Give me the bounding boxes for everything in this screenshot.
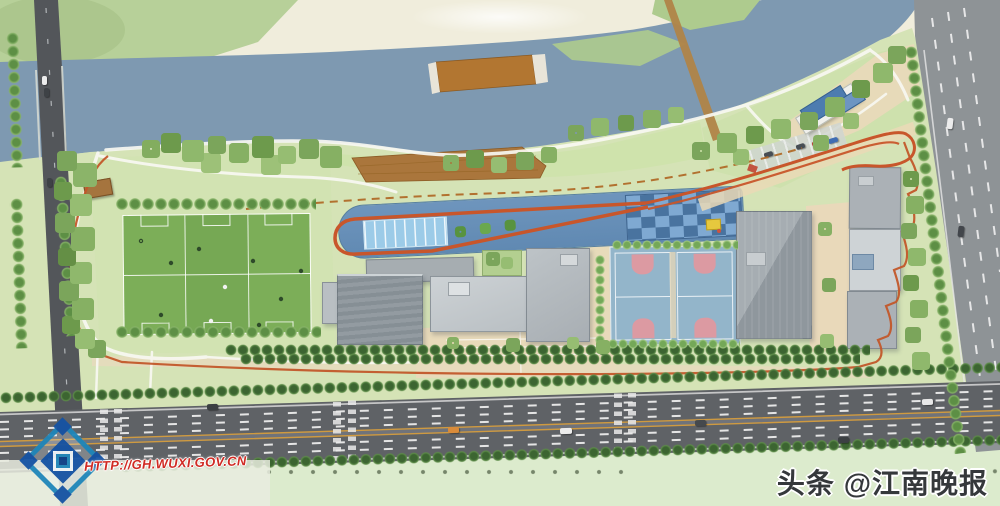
tree-row	[240, 353, 860, 365]
car	[838, 437, 849, 443]
woodland-mid	[450, 162, 452, 164]
car	[695, 420, 706, 426]
campus-plaza-trees	[824, 228, 826, 230]
car	[42, 76, 47, 85]
car	[922, 399, 933, 405]
tree-row	[116, 326, 321, 339]
publisher-handle: @江南晚报	[844, 468, 988, 499]
sapling-row	[266, 468, 626, 476]
car	[560, 428, 572, 434]
car	[207, 404, 218, 410]
bush-row	[608, 339, 740, 349]
woodland-bank	[575, 132, 577, 134]
car	[47, 178, 52, 187]
tree-row	[116, 198, 316, 211]
logo-center	[59, 457, 67, 465]
car	[448, 427, 459, 433]
site-plan: HTTP://GH.WUXI.GOV.CN 头条 @江南晚报	[0, 0, 1000, 506]
running-track-loop	[335, 203, 648, 254]
bush-row	[595, 255, 605, 349]
bush-row	[612, 240, 738, 250]
toutiao-badge: 头条	[777, 468, 835, 499]
car	[44, 88, 49, 97]
boundary-trees	[910, 178, 912, 180]
publisher-watermark: 头条 @江南晚报	[777, 462, 988, 502]
plaza-trees	[452, 342, 454, 344]
track-boundary-layer	[0, 0, 1000, 506]
courtyard-trees	[492, 258, 494, 260]
woodland-riverside	[150, 148, 152, 150]
cloud-wash	[410, 0, 590, 34]
woodland-east	[700, 150, 702, 152]
woodland-west	[78, 160, 80, 162]
